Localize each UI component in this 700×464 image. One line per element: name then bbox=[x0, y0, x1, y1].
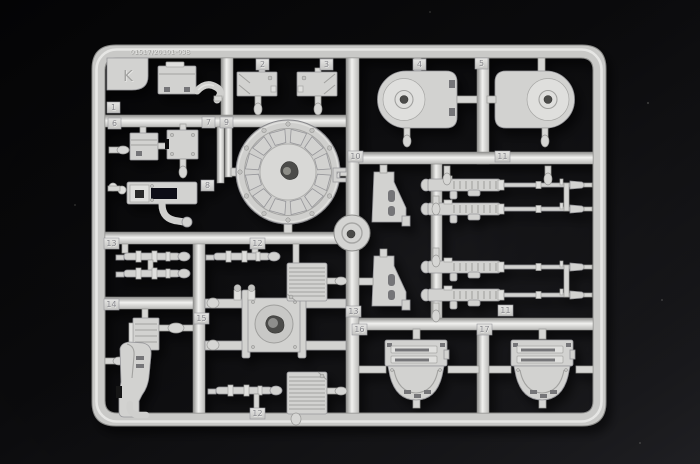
svg-text:K: K bbox=[123, 67, 134, 85]
part-number-tab: 1515 bbox=[194, 313, 209, 324]
part-number-tab: 1212 bbox=[250, 408, 265, 419]
svg-text:5: 5 bbox=[479, 59, 484, 68]
part-number-tab: 1616 bbox=[352, 324, 367, 335]
svg-text:17: 17 bbox=[479, 325, 489, 334]
svg-text:11: 11 bbox=[500, 306, 510, 315]
svg-text:6: 6 bbox=[112, 119, 117, 128]
part-stowage-box bbox=[158, 62, 196, 94]
part-number-tab: 1414 bbox=[104, 299, 119, 310]
part-number-tab: 44 bbox=[413, 59, 426, 70]
sprue-stub bbox=[314, 96, 322, 115]
svg-text:01517/20101-03B: 01517/20101-03B bbox=[130, 49, 190, 56]
part-number-tab: 1313 bbox=[104, 238, 119, 249]
part-small-pulley bbox=[334, 215, 370, 251]
part-number-tab: 77 bbox=[202, 117, 215, 128]
part-number-tab: 88 bbox=[201, 180, 214, 191]
svg-text:14: 14 bbox=[106, 300, 116, 309]
sprue-stub bbox=[179, 159, 187, 178]
photo-model-kit-sprue: 01517/20101-03B 01517/20101-03B K K bbox=[0, 0, 700, 464]
embossed-mold-code: 01517/20101-03B 01517/20101-03B bbox=[130, 49, 191, 57]
svg-text:15: 15 bbox=[196, 314, 206, 323]
part-number-tab: 33 bbox=[320, 59, 333, 70]
part-number-tab: 99 bbox=[220, 117, 233, 128]
svg-text:3: 3 bbox=[324, 60, 329, 69]
sprue-stub bbox=[109, 146, 129, 154]
part-number-tab: 55 bbox=[475, 58, 488, 69]
sprue-stub bbox=[541, 128, 549, 147]
runner-letter-plate: K K bbox=[107, 58, 148, 90]
sprue-photo-canvas: 01517/20101-03B 01517/20101-03B K K bbox=[0, 0, 700, 464]
svg-text:16: 16 bbox=[354, 325, 364, 334]
svg-text:10: 10 bbox=[350, 152, 360, 161]
part-number-tab: 1111 bbox=[495, 151, 510, 162]
svg-text:7: 7 bbox=[206, 118, 211, 127]
svg-text:12: 12 bbox=[252, 409, 262, 418]
part-number-tab: 11 bbox=[107, 102, 120, 113]
part-number-tab: 1010 bbox=[348, 151, 363, 162]
svg-text:1: 1 bbox=[111, 103, 116, 112]
part-number-tab: 66 bbox=[108, 118, 121, 129]
svg-text:11: 11 bbox=[497, 152, 507, 161]
svg-text:13: 13 bbox=[106, 239, 116, 248]
svg-text:12: 12 bbox=[252, 239, 262, 248]
svg-text:9: 9 bbox=[224, 118, 229, 127]
svg-text:8: 8 bbox=[205, 181, 210, 190]
svg-text:4: 4 bbox=[417, 60, 422, 69]
part-number-tab: 1313 bbox=[346, 306, 361, 317]
part-number-tab: 1717 bbox=[477, 324, 492, 335]
part-number-tab: 1111 bbox=[498, 305, 513, 316]
sprue-stub bbox=[403, 128, 411, 147]
sprue-stub bbox=[254, 96, 262, 115]
part-number-tab: 1212 bbox=[250, 238, 265, 249]
svg-text:13: 13 bbox=[348, 307, 358, 316]
part-number-tab: 22 bbox=[256, 59, 269, 70]
svg-text:2: 2 bbox=[260, 60, 265, 69]
